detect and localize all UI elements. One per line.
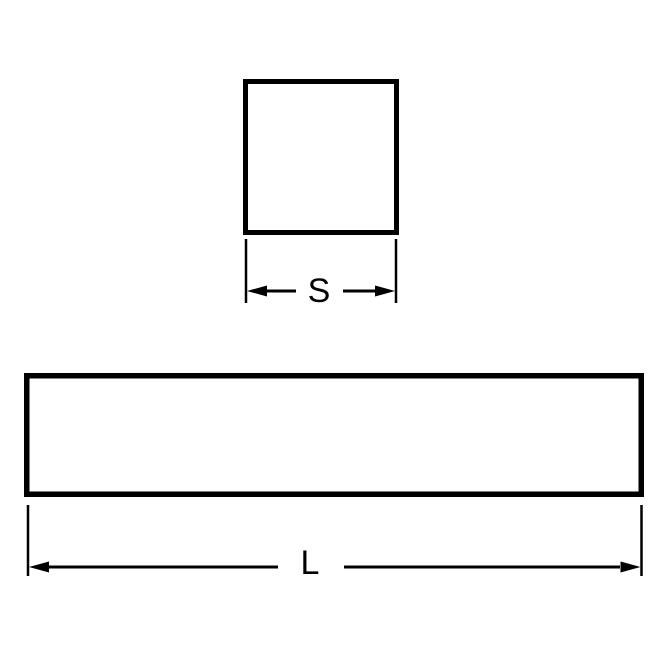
l-dimension-label: L (301, 544, 320, 582)
l-dimension-arrow-right-icon (621, 562, 641, 573)
square-cross-section-view: S (246, 82, 397, 311)
bar-length-profile-view: L (27, 376, 642, 582)
s-dimension-label: S (308, 272, 331, 310)
l-dimension-arrow-left-icon (29, 562, 49, 573)
square-cross-section-outline (246, 82, 397, 233)
s-dimension-arrow-left-icon (247, 286, 267, 297)
keystock-engineering-drawing: S L (0, 0, 670, 670)
bar-profile-outline (27, 376, 642, 495)
drawing-canvas: S L (0, 0, 670, 670)
s-dimension-arrow-right-icon (375, 286, 395, 297)
